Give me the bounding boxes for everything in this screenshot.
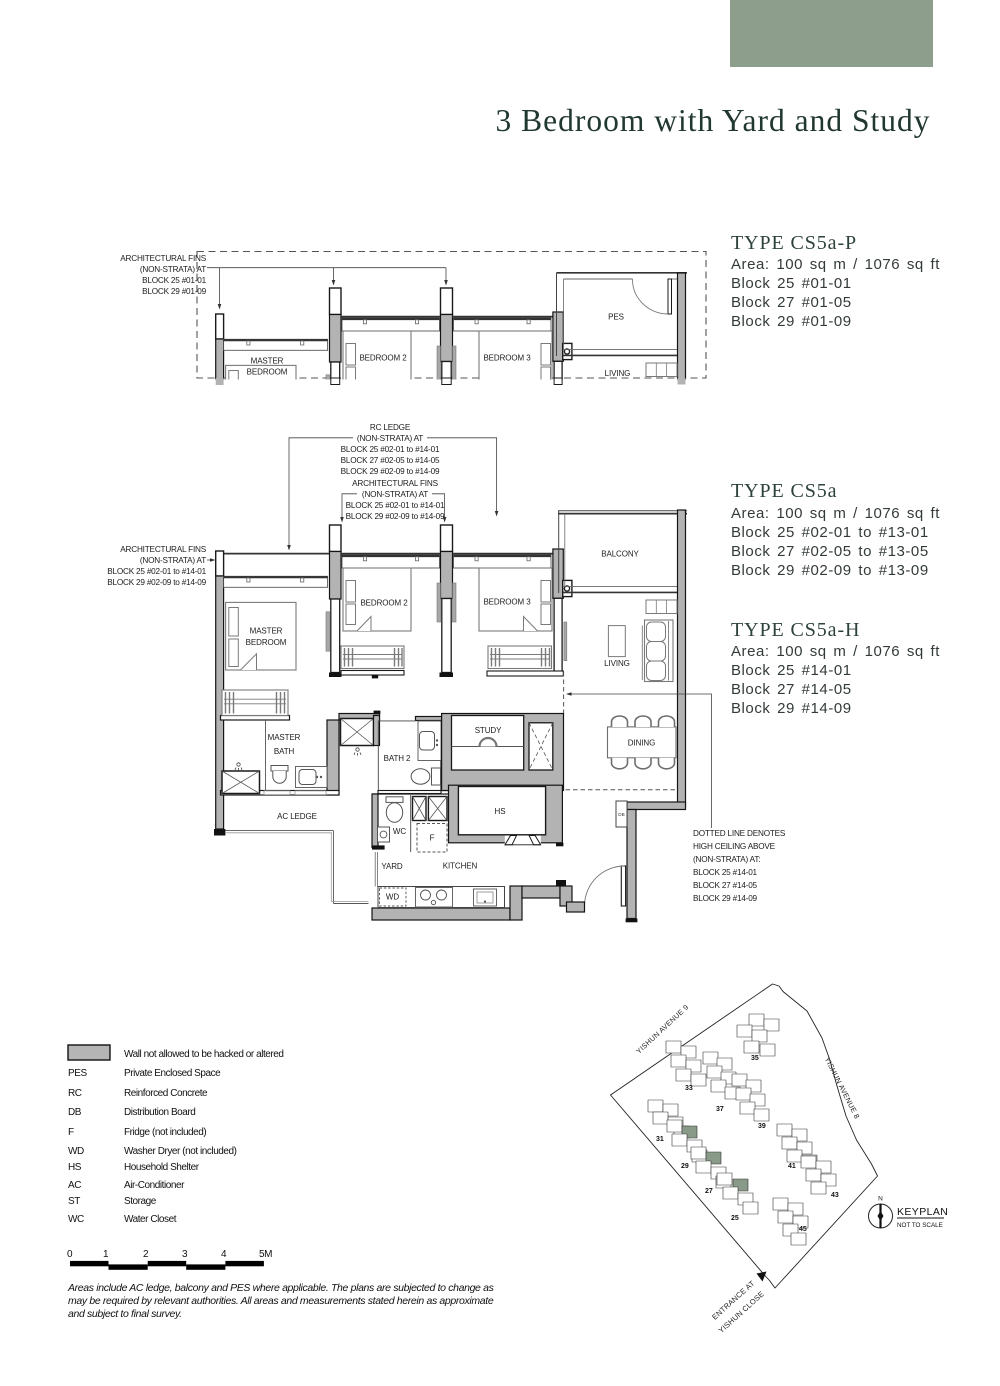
svg-text:4: 4 bbox=[221, 1249, 227, 1260]
svg-text:45: 45 bbox=[799, 1226, 807, 1233]
svg-text:41: 41 bbox=[788, 1163, 796, 1170]
svg-text:Distribution Board: Distribution Board bbox=[124, 1107, 195, 1118]
svg-text:(NON-STRATA) AT: (NON-STRATA) AT bbox=[362, 490, 428, 499]
svg-text:BATH 2: BATH 2 bbox=[384, 754, 411, 763]
svg-text:BLOCK 25 #14-01: BLOCK 25 #14-01 bbox=[693, 868, 758, 877]
svg-text:ARCHITECTURAL FINS: ARCHITECTURAL FINS bbox=[352, 479, 438, 488]
svg-text:BLOCK 25 #01-01: BLOCK 25 #01-01 bbox=[142, 276, 207, 285]
svg-text:ARCHITECTURAL FINS: ARCHITECTURAL FINS bbox=[120, 254, 206, 263]
svg-text:and subject to final survey.: and subject to final survey. bbox=[68, 1308, 182, 1320]
svg-text:NOT TO SCALE: NOT TO SCALE bbox=[897, 1222, 943, 1229]
svg-text:Block 29 #02-09 to #13-09: Block 29 #02-09 to #13-09 bbox=[731, 562, 929, 579]
svg-text:(NON-STRATA) AT:: (NON-STRATA) AT: bbox=[693, 855, 760, 864]
svg-text:Block 29 #14-09: Block 29 #14-09 bbox=[731, 700, 852, 717]
svg-text:29: 29 bbox=[681, 1163, 689, 1170]
svg-text:Block 27 #14-05: Block 27 #14-05 bbox=[731, 681, 852, 698]
svg-text:31: 31 bbox=[656, 1136, 664, 1143]
svg-text:HS: HS bbox=[68, 1162, 82, 1173]
svg-text:TYPE CS5a-P: TYPE CS5a-P bbox=[731, 232, 857, 254]
svg-text:Block 25 #02-01 to #13-01: Block 25 #02-01 to #13-01 bbox=[731, 524, 929, 541]
svg-text:Area: 100 sq m / 1076 sq ft: Area: 100 sq m / 1076 sq ft bbox=[731, 256, 940, 273]
svg-text:BLOCK 29 #02-09 to #14-09: BLOCK 29 #02-09 to #14-09 bbox=[107, 578, 206, 587]
svg-text:27: 27 bbox=[705, 1188, 713, 1195]
svg-text:KITCHEN: KITCHEN bbox=[443, 862, 478, 871]
svg-text:MASTER: MASTER bbox=[251, 357, 284, 366]
svg-text:MASTER: MASTER bbox=[250, 627, 283, 636]
svg-text:Fridge (not included): Fridge (not included) bbox=[124, 1127, 206, 1138]
svg-text:1: 1 bbox=[103, 1249, 109, 1260]
svg-text:PES: PES bbox=[68, 1068, 87, 1079]
svg-text:ST: ST bbox=[68, 1196, 80, 1207]
svg-text:(NON-STRATA) AT: (NON-STRATA) AT bbox=[140, 265, 206, 274]
svg-text:BLOCK 29 #14-09: BLOCK 29 #14-09 bbox=[693, 894, 758, 903]
svg-text:BEDROOM 2: BEDROOM 2 bbox=[360, 599, 408, 608]
svg-text:39: 39 bbox=[758, 1123, 766, 1130]
svg-text:AC: AC bbox=[68, 1180, 81, 1191]
svg-text:BLOCK 27 #14-05: BLOCK 27 #14-05 bbox=[693, 881, 758, 890]
svg-text:2: 2 bbox=[143, 1249, 149, 1260]
svg-text:Private Enclosed Space: Private Enclosed Space bbox=[124, 1068, 221, 1079]
svg-text:BALCONY: BALCONY bbox=[601, 550, 639, 559]
svg-text:may be required by relevant au: may be required by relevant authorities.… bbox=[68, 1295, 494, 1307]
svg-text:Block 27 #01-05: Block 27 #01-05 bbox=[731, 294, 852, 311]
svg-text:Block 25 #14-01: Block 25 #14-01 bbox=[731, 662, 852, 679]
svg-text:0: 0 bbox=[67, 1249, 73, 1260]
svg-text:BEDROOM 2: BEDROOM 2 bbox=[359, 354, 407, 363]
svg-text:Area: 100 sq m / 1076 sq ft: Area: 100 sq m / 1076 sq ft bbox=[731, 643, 940, 660]
svg-text:Washer Dryer (not included): Washer Dryer (not included) bbox=[124, 1146, 237, 1157]
svg-text:DINING: DINING bbox=[628, 739, 655, 748]
svg-text:25: 25 bbox=[731, 1215, 739, 1222]
svg-text:YARD: YARD bbox=[381, 862, 403, 871]
svg-text:Block 25 #01-01: Block 25 #01-01 bbox=[731, 275, 852, 292]
svg-text:RC LEDGE: RC LEDGE bbox=[370, 423, 411, 432]
svg-text:AC LEDGE: AC LEDGE bbox=[277, 812, 317, 821]
svg-text:(NON-STRATA) AT: (NON-STRATA) AT bbox=[357, 434, 423, 443]
svg-text:BLOCK 25 #02-01 to #14-01: BLOCK 25 #02-01 to #14-01 bbox=[107, 567, 206, 576]
svg-text:MASTER: MASTER bbox=[268, 733, 301, 742]
svg-text:STUDY: STUDY bbox=[475, 726, 502, 735]
svg-text:3 Bedroom with Yard and Study: 3 Bedroom with Yard and Study bbox=[495, 103, 930, 138]
svg-text:33: 33 bbox=[685, 1085, 693, 1092]
svg-text:Household Shelter: Household Shelter bbox=[124, 1162, 200, 1173]
svg-text:ARCHITECTURAL FINS: ARCHITECTURAL FINS bbox=[120, 545, 206, 554]
svg-text:TYPE CS5a: TYPE CS5a bbox=[731, 480, 837, 502]
svg-text:Block 29 #01-09: Block 29 #01-09 bbox=[731, 313, 852, 330]
svg-text:(NON-STRATA) AT: (NON-STRATA) AT bbox=[140, 556, 206, 565]
svg-text:BEDROOM 3: BEDROOM 3 bbox=[483, 354, 531, 363]
svg-text:37: 37 bbox=[716, 1106, 724, 1113]
svg-text:WC: WC bbox=[393, 827, 406, 836]
svg-text:RC: RC bbox=[68, 1088, 82, 1099]
svg-text:BLOCK 29 #02-09 to #14-09: BLOCK 29 #02-09 to #14-09 bbox=[346, 512, 445, 521]
svg-text:HS: HS bbox=[495, 807, 506, 816]
svg-text:BLOCK 29 #02-09 to #14-09: BLOCK 29 #02-09 to #14-09 bbox=[341, 467, 440, 476]
svg-text:BLOCK 25 #02-01 to #14-01: BLOCK 25 #02-01 to #14-01 bbox=[341, 445, 440, 454]
svg-text:BEDROOM 3: BEDROOM 3 bbox=[483, 598, 531, 607]
svg-text:WC: WC bbox=[68, 1214, 84, 1225]
svg-text:LIVING: LIVING bbox=[605, 369, 631, 378]
svg-text:HIGH CEILING ABOVE: HIGH CEILING ABOVE bbox=[693, 842, 776, 851]
svg-text:F: F bbox=[68, 1127, 74, 1138]
svg-text:F: F bbox=[430, 834, 435, 843]
svg-text:Air-Conditioner: Air-Conditioner bbox=[124, 1180, 185, 1191]
svg-text:WD: WD bbox=[386, 893, 399, 902]
svg-text:DOTTED LINE DENOTES: DOTTED LINE DENOTES bbox=[693, 829, 786, 838]
svg-text:N: N bbox=[878, 1196, 883, 1203]
svg-text:43: 43 bbox=[831, 1192, 839, 1199]
svg-text:Water Closet: Water Closet bbox=[124, 1214, 177, 1225]
svg-text:BEDROOM: BEDROOM bbox=[246, 638, 287, 647]
svg-text:Reinforced Concrete: Reinforced Concrete bbox=[124, 1088, 208, 1099]
svg-text:BLOCK 27 #02-05 to #14-05: BLOCK 27 #02-05 to #14-05 bbox=[341, 456, 440, 465]
svg-text:5M: 5M bbox=[259, 1249, 272, 1260]
svg-text:Areas include AC ledge, balcon: Areas include AC ledge, balcony and PES … bbox=[67, 1282, 495, 1294]
svg-text:Block 27 #02-05 to #13-05: Block 27 #02-05 to #13-05 bbox=[731, 543, 929, 560]
svg-text:PES: PES bbox=[608, 313, 624, 322]
svg-text:TYPE CS5a-H: TYPE CS5a-H bbox=[731, 619, 860, 641]
svg-text:DB: DB bbox=[68, 1107, 82, 1118]
svg-text:Wall not allowed to be hacked: Wall not allowed to be hacked or altered bbox=[124, 1049, 284, 1060]
svg-text:BATH: BATH bbox=[274, 747, 295, 756]
svg-text:BLOCK 29 #01-09: BLOCK 29 #01-09 bbox=[142, 287, 207, 296]
svg-text:Area: 100 sq m / 1076 sq ft: Area: 100 sq m / 1076 sq ft bbox=[731, 505, 940, 522]
svg-text:KEYPLAN: KEYPLAN bbox=[897, 1206, 948, 1218]
svg-text:Storage: Storage bbox=[124, 1196, 157, 1207]
svg-text:DB: DB bbox=[618, 812, 624, 817]
svg-text:LIVING: LIVING bbox=[604, 659, 630, 668]
svg-text:35: 35 bbox=[751, 1055, 759, 1062]
svg-text:3: 3 bbox=[182, 1249, 188, 1260]
svg-text:BLOCK 25 #02-01 to #14-01: BLOCK 25 #02-01 to #14-01 bbox=[346, 501, 445, 510]
svg-text:WD: WD bbox=[68, 1146, 84, 1157]
svg-text:BEDROOM: BEDROOM bbox=[247, 368, 288, 377]
